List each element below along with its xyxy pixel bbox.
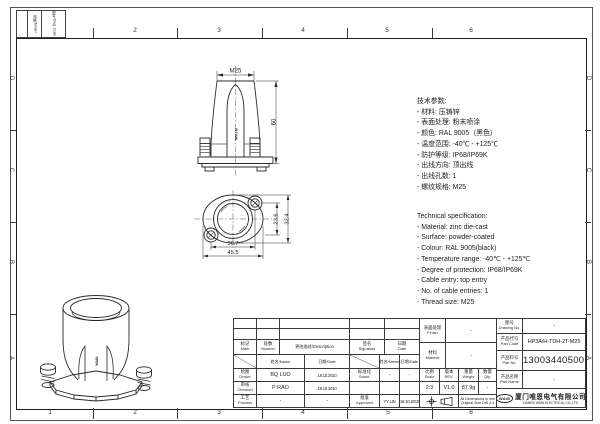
spec-en-item: - Degree of protection: IP68/IP69K <box>417 266 530 277</box>
spec-en-item: - Material: zinc die-cast <box>417 223 530 234</box>
title-block-middle: 表面处理Finish - 材料Material - 比例Scale 版本REV.… <box>420 318 497 408</box>
corner-box-dwg-code: 图号/Dwg. Code <box>41 10 66 38</box>
zone-letter-left: B <box>8 260 14 264</box>
company-name-en: XIAMEN WAIN ELECTRICAL CO.,LTD <box>523 401 579 405</box>
drawn-label: 绘图Drawn <box>233 369 257 382</box>
zone-number-bottom: 1 <box>48 409 52 416</box>
zone-number-top: 5 <box>385 27 389 34</box>
scale-value: 2:3 <box>420 382 440 395</box>
zone-letter-left: D <box>8 76 14 80</box>
date-header: 日期Date <box>385 340 420 355</box>
weight-value: 87.9g <box>459 382 479 395</box>
spec-en-item: - Colour: RAL 9005(black) <box>417 244 530 255</box>
zone-number-top: 3 <box>217 27 221 34</box>
material-label: 材料Material <box>420 343 446 369</box>
spec-block-english: Technical specification: - Material: zin… <box>417 212 530 308</box>
top-dim-outer-width: 45.5 <box>227 250 238 256</box>
date-subheader: 日期/Date <box>305 355 350 369</box>
drawn-date: 18.10.2010 <box>305 369 350 382</box>
stand-name: - <box>380 369 400 382</box>
spec-en-item: - Cable entry: top entry <box>417 276 530 287</box>
spec-cn-item: - 出线方向: 顶出线 <box>417 161 498 172</box>
spec-cn-item: - 温度范围: -40℃ - +125℃ <box>417 140 498 151</box>
title-block-revision-table: 标记Mark 处数Number 更改描述/Description 签名Signa… <box>233 318 420 408</box>
spec-cn-item: - 表面处理: 粉末喷涂 <box>417 118 498 129</box>
drawn-name: BQ LUO <box>257 369 305 382</box>
finish-value: - <box>446 318 497 343</box>
first-angle-projection-icon <box>426 396 437 407</box>
top-view: 36.7 45.5 23.6 32.4 <box>192 186 304 264</box>
projection-symbols <box>420 395 459 408</box>
description-header: 更改描述/Description <box>280 340 350 355</box>
diagonal-cell <box>233 355 257 369</box>
zone-number-top: 2 <box>133 27 137 34</box>
signature-header: 签名Signature <box>350 340 385 355</box>
zone-number-bottom: 4 <box>301 409 305 416</box>
part-name-value: - <box>523 371 586 389</box>
approved-date: 18.10.2010 <box>400 395 420 408</box>
date-subheader: 日期/Date <box>400 355 420 369</box>
number-header: 处数Number <box>257 340 280 355</box>
spec-cn-item: - 材料: 压铸锌 <box>417 108 498 119</box>
zone-letter-right: D <box>585 76 591 80</box>
approved-name: YY LIN <box>380 395 400 408</box>
spec-cn-item: - 颜色: RAL 9005（黑色） <box>417 129 498 140</box>
isometric-view: WAIN <box>32 283 160 405</box>
engineering-drawing-sheet: 1 2 3 4 5 6 1 2 3 4 5 6 D C B A D C B A … <box>0 0 600 424</box>
front-brand-label: WAIN <box>234 128 239 140</box>
zone-number-bottom: 3 <box>217 409 221 416</box>
checked-label: 审核Checked <box>233 382 257 395</box>
company-block: WAIN 厦门唯恩电气有限公司 XIAMEN WAIN ELECTRICAL C… <box>497 389 586 408</box>
weight-label: 重量Weight <box>459 369 479 382</box>
zone-letter-right: C <box>585 168 591 172</box>
dimensions-note: All Dimensions in mm Original Size DIN A… <box>459 395 497 408</box>
spec-en-item: - No. of cable entries: 1 <box>417 287 530 298</box>
truncated-cone-icon <box>440 397 453 406</box>
diagonal-cell <box>350 355 380 369</box>
part-no-value: 1130034405003 <box>523 351 586 371</box>
front-height-dim: 60 <box>272 118 278 125</box>
company-name-cn: 厦门唯恩电气有限公司 <box>515 391 586 401</box>
stand-date: - <box>400 369 420 382</box>
part-code-label: 产品代号Part Code <box>497 334 523 351</box>
zone-number-top: 4 <box>301 27 305 34</box>
process-date: - <box>305 395 350 408</box>
process-label: 工艺Process <box>233 395 257 408</box>
zone-letter-right: B <box>585 260 591 264</box>
part-name-label: 产品名称Part Name <box>497 371 523 389</box>
spec-en-title: Technical specification: <box>417 212 530 223</box>
spec-cn-title: 技术参数: <box>417 97 498 108</box>
corner-box-model: 规格/Model <box>27 10 42 38</box>
spec-en-item: - Thread size: M25 <box>417 298 530 309</box>
zone-number-bottom: 5 <box>386 409 390 416</box>
zone-letter-left: A <box>8 356 14 360</box>
name-subheader: 姓名/Name <box>257 355 305 369</box>
part-no-label: 产品料号Part No. <box>497 351 523 371</box>
iso-brand-label: WAIN <box>95 356 99 366</box>
finish-label: 表面处理Finish <box>420 318 446 343</box>
mark-header: 标记Mark <box>233 340 257 355</box>
qty-value: - <box>479 382 497 395</box>
spec-cn-item: - 防护等级: IP68/IP69K <box>417 151 498 162</box>
company-logo: WAIN <box>497 394 513 403</box>
spec-en-item: - Surface: powder-coated <box>417 233 530 244</box>
top-dim-outer-height: 32.4 <box>285 213 291 225</box>
front-thread-dim: M25 <box>230 69 242 75</box>
rev-label: 版本REV. <box>440 369 459 382</box>
process-name: - <box>257 395 305 408</box>
top-dim-inner-width: 36.7 <box>227 241 238 247</box>
approved-label: 批准Approved <box>350 395 380 408</box>
zone-number-top: 6 <box>469 27 473 34</box>
title-block-right: 图号Drawing No. - 产品代号Part Code HP3A/H-TDH… <box>497 318 586 408</box>
top-dim-inner-height: 23.6 <box>274 213 280 224</box>
stand-label: 标准化Stand. <box>350 369 380 382</box>
front-view: M25 60 WAIN <box>183 60 288 182</box>
drawing-no-value: - <box>523 318 586 334</box>
spec-cn-item: - 螺纹规格: M25 <box>417 183 498 194</box>
checked-name: P RAO <box>257 382 305 395</box>
zone-letter-left: C <box>8 168 14 172</box>
spec-block-chinese: 技术参数: - 材料: 压铸锌 - 表面处理: 粉末喷涂 - 颜色: RAL 9… <box>417 97 498 193</box>
spec-en-item: - Temperature range: -40℃ - +125℃ <box>417 255 530 266</box>
drawing-no-label: 图号Drawing No. <box>497 318 523 334</box>
name-subheader: 姓名/Name <box>380 355 400 369</box>
part-code-value: HP3A/H-TDH-2T-M25 <box>523 334 586 351</box>
material-value: - <box>446 343 497 369</box>
zone-number-bottom: 6 <box>469 409 473 416</box>
qty-label: 数量Qty. <box>479 369 497 382</box>
checked-date: 18.10.2010 <box>305 382 350 395</box>
zone-number-bottom: 2 <box>133 409 137 416</box>
spec-cn-item: - 出线孔数: 1 <box>417 172 498 183</box>
scale-label: 比例Scale <box>420 369 440 382</box>
rev-value: V1.0 <box>440 382 459 395</box>
